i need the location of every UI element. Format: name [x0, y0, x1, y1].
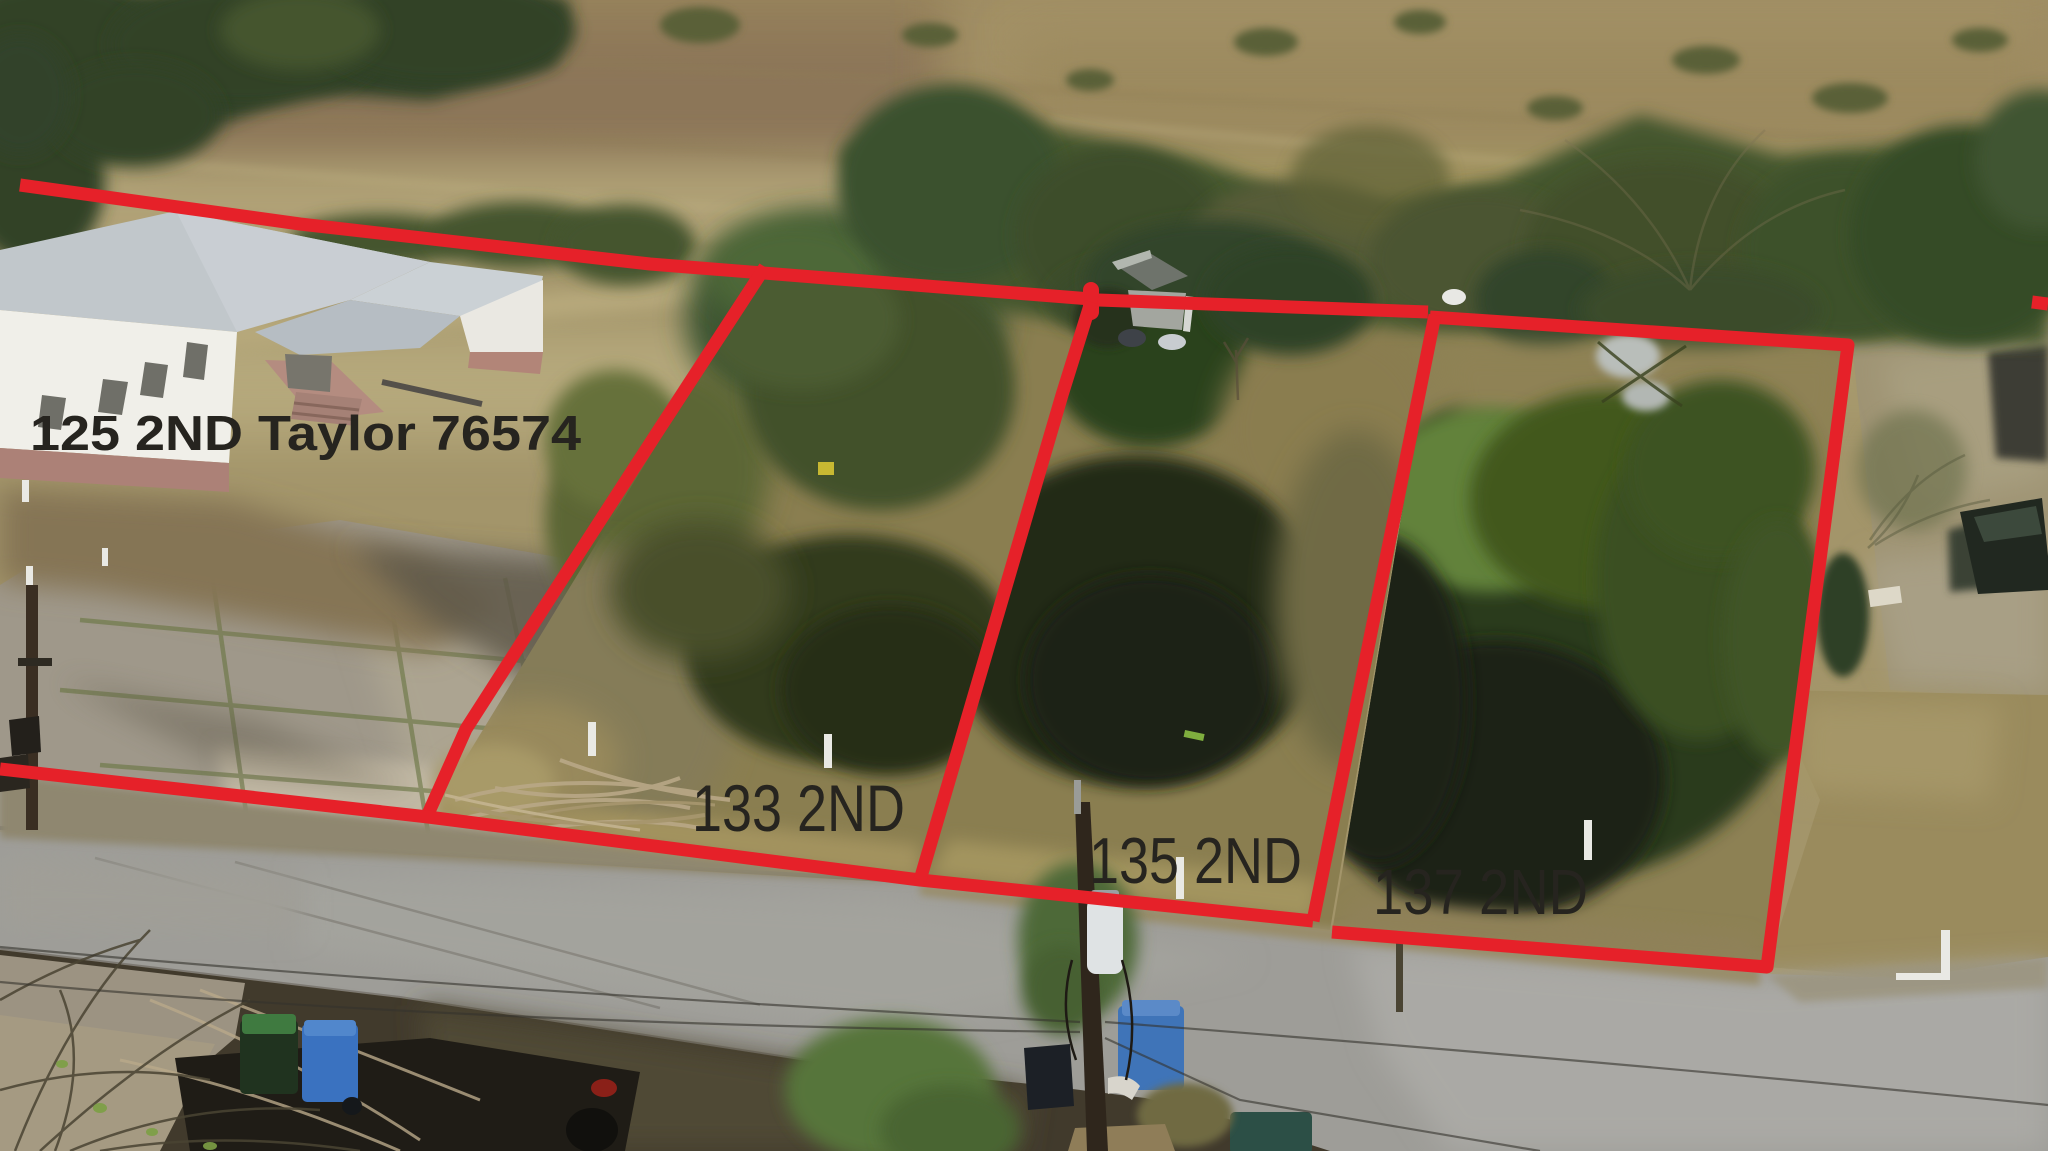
svg-text:133 2ND: 133 2ND	[692, 771, 905, 845]
svg-text:135 2ND: 135 2ND	[1089, 824, 1302, 897]
svg-text:125 2ND Taylor 76574: 125 2ND Taylor 76574	[30, 406, 581, 461]
svg-text:137 2ND: 137 2ND	[1373, 856, 1588, 928]
